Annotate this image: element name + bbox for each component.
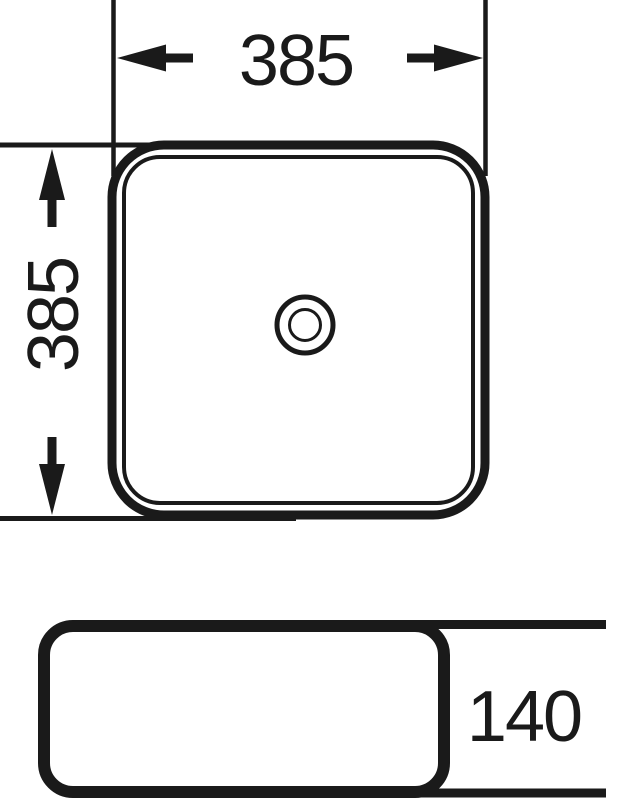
depth-dimension-label: 385 [11, 205, 97, 425]
width-dimension-label: 385 [186, 18, 406, 104]
basin-side-view-outline [44, 626, 444, 792]
basin-dimension-drawing: 385 385 140 [0, 0, 619, 800]
drain-inner-circle [290, 310, 321, 341]
arrow-left-icon [117, 45, 193, 72]
basin-top-view-inner-rim [124, 157, 473, 503]
basin-top-view-outer-outline [112, 145, 485, 515]
arrow-right-icon [407, 45, 483, 72]
arrow-down-icon [39, 437, 65, 515]
height-dimension-label: 140 [424, 674, 619, 760]
drain-outer-circle [277, 297, 333, 353]
